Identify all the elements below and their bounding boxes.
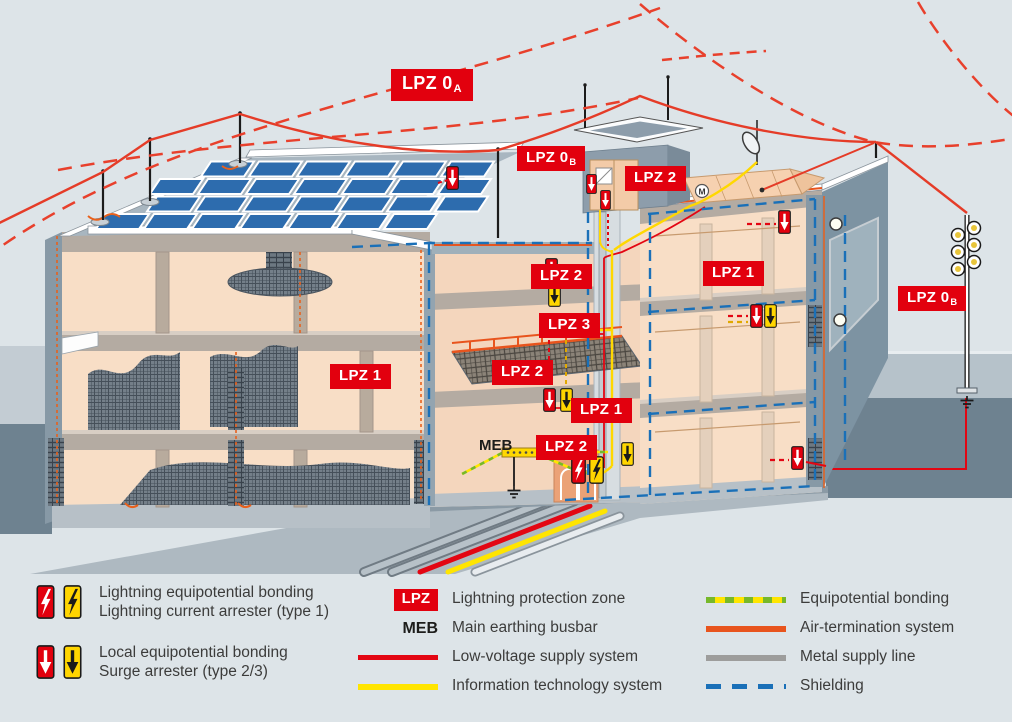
zone-label-lpz1-right: LPZ 1 (703, 261, 764, 286)
surge-arrester-icons (36, 644, 84, 680)
surge-arrester-icon (765, 305, 777, 328)
solar-panel (192, 214, 245, 229)
legend-item-equipotential: Equipotential bonding (706, 585, 954, 614)
legend-label: Equipotential bonding (800, 590, 949, 609)
legend-label: Lightning protection zone (452, 590, 625, 609)
solar-panel (336, 214, 389, 229)
zone-label-lpz0b-street: LPZ 0B (898, 286, 966, 311)
legend-label: Low-voltage supply system (452, 648, 638, 667)
it-line-swatch (358, 684, 438, 690)
solar-panel (198, 179, 251, 194)
legend-item-lightning-arrester: Lightning equipotential bonding Lightnin… (36, 584, 329, 621)
legend-item-it-system: Information technology system (358, 672, 662, 701)
air-termination-swatch (706, 626, 786, 632)
surge-arrester-icon (779, 211, 791, 234)
legend-item-metal-line: Metal supply line (706, 643, 954, 672)
zone-label-lpz0b-roof: LPZ 0B (517, 146, 585, 171)
lightning-protection-zones-diagram: M (0, 0, 1012, 722)
solar-panel (291, 197, 344, 212)
lpz-key-badge: LPZ (394, 589, 438, 611)
solar-panel (339, 197, 392, 212)
solar-panel (435, 197, 488, 212)
solar-panel (240, 214, 293, 229)
zone-label-lpz1-shaft: LPZ 1 (571, 398, 632, 423)
lightning-current-arrester-icon (590, 457, 604, 483)
surge-arrester-icon (751, 305, 763, 328)
surge-arrester-icon (587, 175, 597, 194)
lightning-arrester-icons (36, 584, 84, 620)
solar-panel (387, 197, 440, 212)
legend-label: Main earthing busbar (452, 619, 598, 638)
surge-arrester-icon (622, 443, 634, 466)
legend-label: Surge arrester (type 2/3) (99, 663, 288, 682)
zone-label-lpz2-roof: LPZ 2 (625, 166, 686, 191)
solar-panel (390, 179, 443, 194)
zone-label-lpz2-upper: LPZ 2 (531, 264, 592, 289)
zone-label-lpz2-middle: LPZ 2 (492, 360, 553, 385)
solar-panel (150, 179, 203, 194)
legend-label: Local equipotential bonding (99, 644, 288, 663)
wall-lamp-icon (834, 314, 846, 326)
surge-arrester-icon (447, 167, 459, 190)
legend-line-types: Equipotential bonding Air-termination sy… (706, 585, 954, 701)
metal-line-swatch (706, 655, 786, 661)
surge-arrester-icon (544, 389, 556, 412)
legend-label: Lightning current arrester (type 1) (99, 603, 329, 622)
solar-panel (195, 197, 248, 212)
legend-abbreviations: LPZ Lightning protection zone MEB Main e… (358, 585, 662, 701)
legend-label: Lightning equipotential bonding (99, 584, 329, 603)
solar-panel (384, 214, 437, 229)
zone-label-lpz0a: LPZ 0A (391, 69, 473, 101)
legend-item-meb: MEB Main earthing busbar (358, 614, 662, 643)
zone-label-lpz3: LPZ 3 (539, 313, 600, 338)
wall-lamp-icon (830, 218, 842, 230)
surge-arrester-icon (601, 191, 611, 210)
legend-item-shielding: Shielding (706, 672, 954, 701)
solar-panel (294, 179, 347, 194)
solar-panel (249, 162, 302, 177)
legend-label: Information technology system (452, 677, 662, 696)
solar-panel (297, 162, 350, 177)
meb-diagram-label: MEB (479, 437, 512, 454)
meb-key: MEB (402, 619, 438, 638)
low-voltage-line-swatch (358, 655, 438, 660)
legend-item-air-termination: Air-termination system (706, 614, 954, 643)
legend-label: Metal supply line (800, 648, 915, 667)
legend-item-surge-arrester: Local equipotential bonding Surge arrest… (36, 644, 329, 681)
legend-arresters: Lightning equipotential bonding Lightnin… (36, 584, 329, 704)
lightning-current-arrester-icon (572, 457, 586, 483)
legend-item-lpz: LPZ Lightning protection zone (358, 585, 662, 614)
solar-panel (393, 162, 446, 177)
zone-label-lpz2-entry: LPZ 2 (536, 435, 597, 460)
solar-panel (246, 179, 299, 194)
solar-panel (144, 214, 197, 229)
shielding-swatch (706, 684, 786, 689)
solar-panel (288, 214, 341, 229)
solar-panel (243, 197, 296, 212)
svg-text:M: M (698, 187, 705, 197)
solar-panel (345, 162, 398, 177)
equipotential-line-swatch (706, 597, 786, 603)
surge-arrester-icon (792, 447, 804, 470)
legend-label: Air-termination system (800, 619, 954, 638)
legend-item-low-voltage: Low-voltage supply system (358, 643, 662, 672)
legend-label: Shielding (800, 677, 864, 696)
zone-label-lpz1-left: LPZ 1 (330, 364, 391, 389)
solar-panel (342, 179, 395, 194)
